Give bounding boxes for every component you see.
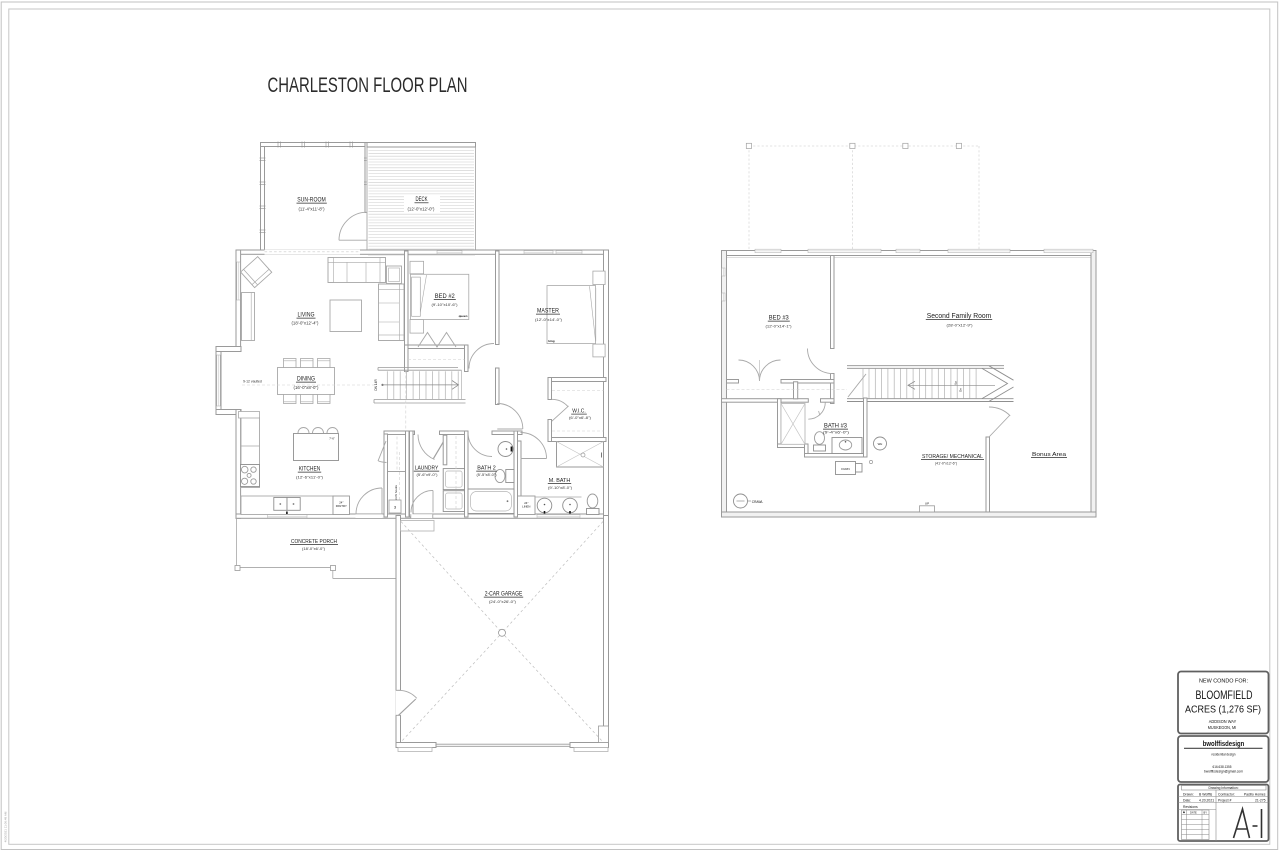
svg-text:W.I.C.: W.I.C.	[572, 409, 586, 415]
svg-text:M. BATH: M. BATH	[549, 478, 571, 484]
svg-text:BATH 2: BATH 2	[477, 466, 496, 472]
svg-text:DECK: DECK	[416, 196, 429, 203]
svg-text:(12'-0"x14'-0"): (12'-0"x14'-0")	[535, 317, 563, 322]
svg-text:MUSKEGON, MI: MUSKEGON, MI	[1208, 725, 1237, 730]
svg-text:(6'-0"x6'-8"): (6'-0"x6'-8")	[569, 416, 592, 420]
svg-text:SUN-ROOM: SUN-ROOM	[297, 196, 326, 203]
svg-text:BATH #3: BATH #3	[824, 424, 848, 430]
svg-text:BY: BY	[1204, 811, 1208, 815]
svg-text:Drawn:: Drawn:	[1183, 792, 1194, 796]
svg-text:DINING: DINING	[297, 376, 315, 383]
svg-text:king: king	[548, 339, 554, 343]
svg-text:residential design: residential design	[1212, 753, 1236, 757]
svg-text:(9'-4"x6'-0"): (9'-4"x6'-0")	[823, 430, 849, 434]
svg-text:(9'-10"x10'-6"): (9'-10"x10'-6")	[432, 302, 459, 307]
svg-text:(5'-5"x8'-0"): (5'-5"x8'-0")	[477, 473, 497, 477]
svg-text:Contractor:: Contractor:	[1218, 792, 1235, 796]
svg-text:Second Family Room: Second Family Room	[927, 313, 992, 320]
svg-text:UP: UP	[925, 501, 929, 505]
svg-text:(24'-0"x26'-0"): (24'-0"x26'-0")	[489, 599, 517, 604]
svg-text:CRAWL: CRAWL	[752, 500, 764, 504]
svg-text:4.20.2021: 4.20.2021	[1199, 798, 1214, 802]
svg-text:BED #3: BED #3	[769, 316, 790, 322]
svg-text:STORAGE/ MECHANICAL: STORAGE/ MECHANICAL	[922, 454, 983, 460]
svg-text:ACRES (1,276 SF): ACRES (1,276 SF)	[1185, 704, 1261, 716]
svg-text:4/20/2021 11:06:48 AM: 4/20/2021 11:06:48 AM	[4, 811, 8, 842]
svg-text:(5'-6"x9'-0"): (5'-6"x9'-0")	[417, 473, 438, 477]
svg-text:616.638.1355: 616.638.1355	[1213, 765, 1232, 769]
svg-text:NEW CONDO FOR:: NEW CONDO FOR:	[1199, 679, 1248, 685]
svg-text:ADDISON WAY: ADDISON WAY	[1209, 719, 1237, 724]
svg-text:B Wolffis: B Wolffis	[1199, 792, 1213, 796]
svg-text:(18'-0"x12'-4"): (18'-0"x12'-4")	[292, 321, 320, 326]
svg-text:Project #: Project #	[1218, 798, 1231, 802]
svg-text:7'-6": 7'-6"	[329, 437, 335, 441]
svg-text:21-275: 21-275	[1255, 798, 1266, 802]
svg-text:Up: Up	[954, 381, 958, 385]
svg-text:9-12 vaulted: 9-12 vaulted	[243, 380, 262, 384]
svg-text:FURN: FURN	[841, 467, 849, 471]
svg-text:(16'-0"x8'-0"): (16'-0"x8'-0")	[294, 385, 320, 390]
svg-text:Revisions: Revisions	[1183, 805, 1198, 809]
svg-text:bwolffisdesign@gmail.com: bwolffisdesign@gmail.com	[1204, 770, 1243, 774]
svg-text:CONCRETE PORCH: CONCRETE PORCH	[291, 539, 337, 545]
svg-text:(11'-4"x11'-8"): (11'-4"x11'-8")	[299, 206, 326, 211]
svg-text:LIVING: LIVING	[298, 312, 315, 319]
svg-text:KITCHEN: KITCHEN	[299, 467, 321, 473]
svg-text:(12'-6"x11'-0"): (12'-6"x11'-0")	[296, 475, 324, 480]
svg-text:Dn: Dn	[959, 388, 963, 392]
svg-text:BED #2: BED #2	[435, 294, 456, 300]
svg-text:BLOOMFIELD: BLOOMFIELD	[1196, 690, 1253, 702]
svg-text:(41'-0"x12'-6"): (41'-0"x12'-6")	[935, 462, 957, 466]
svg-text:(18'-0"x6'-0"): (18'-0"x6'-0")	[302, 547, 326, 551]
svg-text:(9'-10"x8'-0"): (9'-10"x8'-0")	[548, 486, 573, 490]
svg-text:Pacillo Homes: Pacillo Homes	[1244, 792, 1266, 796]
svg-text:WH: WH	[878, 442, 883, 446]
svg-text:LINEN: LINEN	[522, 504, 530, 508]
svg-text:DN 14R: DN 14R	[374, 379, 378, 391]
svg-text:queen: queen	[459, 314, 468, 318]
svg-text:(28'-0"x12'-9"): (28'-0"x12'-9")	[947, 323, 974, 328]
svg-text:DATE: DATE	[1190, 811, 1197, 815]
svg-text:Drawing Information:: Drawing Information:	[1209, 786, 1239, 790]
svg-text:PANTRY: PANTRY	[336, 504, 347, 508]
svg-text:bwolffisdesign: bwolffisdesign	[1203, 739, 1245, 748]
svg-text:CHARLESTON FLOOR PLAN: CHARLESTON FLOOR PLAN	[268, 74, 468, 97]
svg-text:MASTER: MASTER	[537, 308, 559, 315]
svg-text:(12'-0"x12'-0"): (12'-0"x12'-0")	[408, 207, 436, 212]
svg-text:2-CAR GARAGE: 2-CAR GARAGE	[485, 592, 523, 598]
svg-text:Bonus Area: Bonus Area	[1032, 452, 1067, 458]
svg-text:(12'-0"x14'-1"): (12'-0"x14'-1")	[766, 324, 793, 329]
svg-text:Date:: Date:	[1183, 798, 1191, 802]
svg-text:LAUNDRY: LAUNDRY	[415, 466, 439, 472]
